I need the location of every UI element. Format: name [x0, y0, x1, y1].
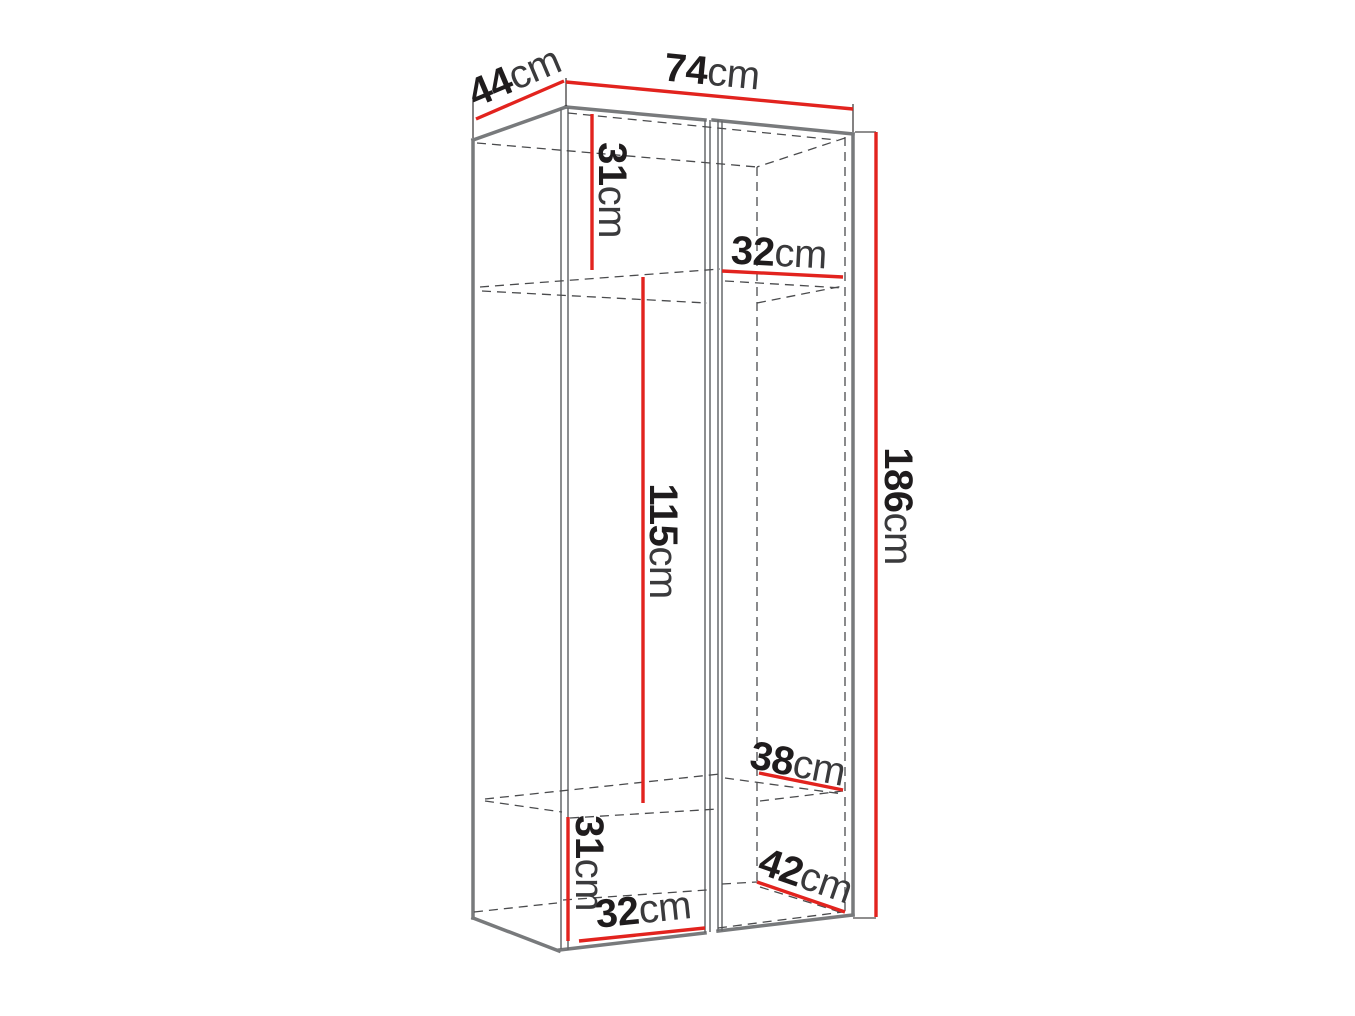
dim-label-upper-shelf-width: 32cm: [730, 229, 828, 278]
interior-top-right-depth-edge: [757, 138, 845, 167]
top-front-edge-left-door: [566, 107, 705, 120]
dim-label-middle-section-height: 115cm: [641, 483, 685, 598]
upper-shelf-right-front-edge: [725, 281, 843, 288]
wardrobe-dimension-drawing: 44cm 74cm 31cm 32cm 115cm 186cm 38cm 31c…: [0, 0, 1355, 1016]
interior-top-front-edge: [568, 113, 837, 140]
interior-floor-back-edge-right: [722, 882, 757, 884]
dim-label-lower-shelf-depth: 38cm: [747, 733, 849, 794]
dimension-diagram-canvas: 44cm 74cm 31cm 32cm 115cm 186cm 38cm 31c…: [0, 0, 1355, 1016]
top-front-edge-right-door: [713, 120, 853, 134]
dim-label-width-top: 74cm: [662, 46, 762, 99]
upper-shelf-right-depth-edge: [757, 286, 843, 303]
interior-floor-left-edge: [474, 903, 557, 912]
dim-label-upper-section-height: 31cm: [590, 142, 634, 238]
upper-shelf-back-edge: [482, 291, 707, 303]
dim-label-bottom-width: 32cm: [593, 883, 693, 937]
bottom-left-depth-edge: [473, 918, 559, 951]
bottom-front-edge-right-door: [718, 915, 853, 931]
lower-shelf-left-depth-edge: [485, 801, 562, 812]
upper-shelf-front-edge: [480, 269, 720, 287]
dim-label-total-height: 186cm: [876, 447, 920, 565]
lower-shelf-front-edge: [485, 774, 720, 799]
